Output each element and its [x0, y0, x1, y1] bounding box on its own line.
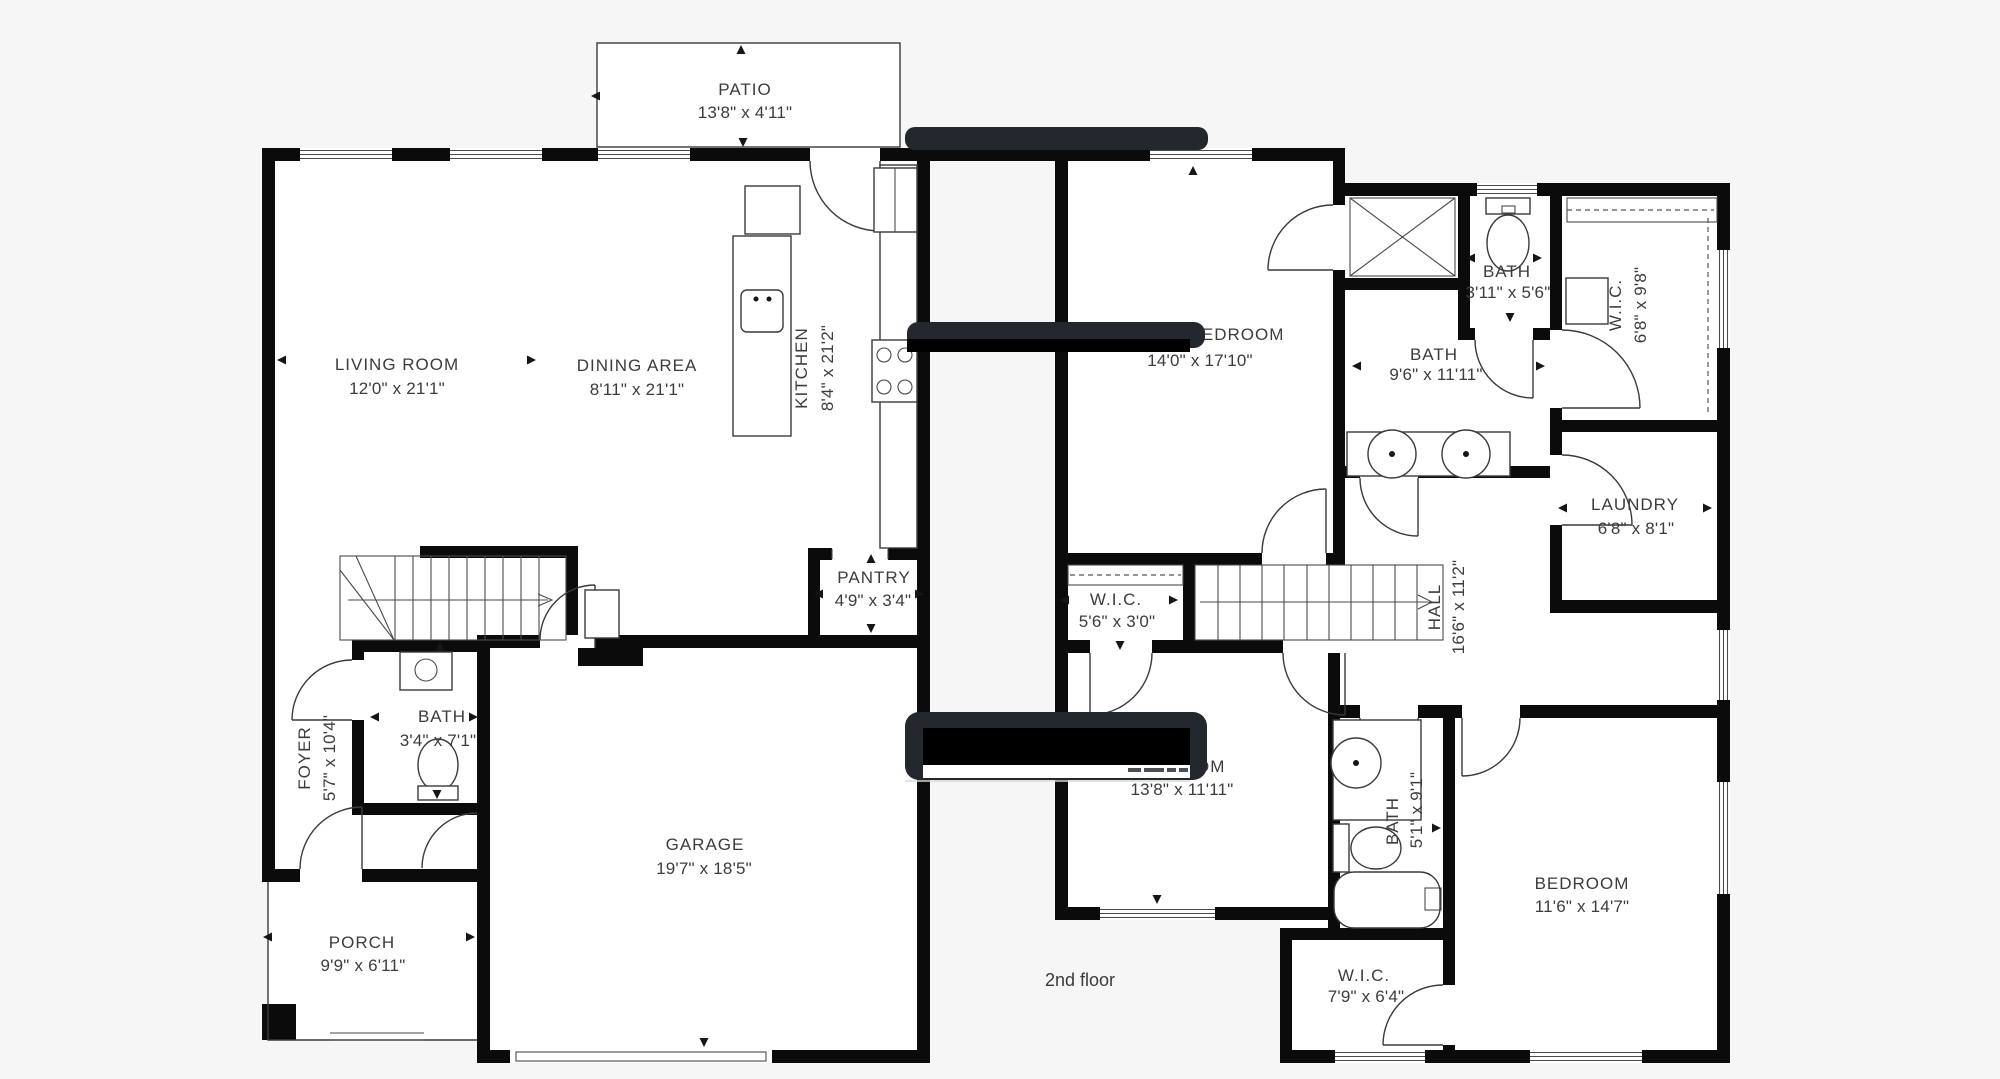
bathtub [1334, 872, 1440, 928]
bedroom2-dims: 13'8" x 11'11" [1131, 780, 1234, 799]
floor-label: 2nd floor [1045, 970, 1115, 990]
kitchen-dims: 8'4" x 21'2" [818, 325, 837, 411]
hall-dims: 16'6" x 11'2" [1449, 560, 1468, 655]
foyer-label: FOYER [295, 726, 314, 790]
kitchen-sink [741, 290, 783, 332]
redaction-bar-middle [907, 322, 1205, 352]
redaction-bar-top [905, 127, 1208, 150]
pantry-label: PANTRY [837, 568, 910, 587]
bath1-dims: 3'4" x 7'1" [400, 731, 477, 750]
wic-hall-label: W.I.C. [1090, 590, 1142, 609]
bath2-dims: 5'1" x 9'1" [1407, 772, 1426, 849]
kitchen-island [733, 236, 791, 436]
bath-sink [400, 652, 452, 690]
patio-label: PATIO [718, 80, 772, 99]
bath2-label: BATH [1383, 797, 1402, 845]
patio-dims: 13'8" x 4'11" [698, 103, 793, 122]
kitchen-label: KITCHEN [792, 327, 811, 409]
foyer-dims: 5'7" x 10'4" [320, 715, 339, 801]
wic-main-dims: 6'8" x 9'8" [1631, 267, 1650, 344]
wic-hall-dims: 5'6" x 3'0" [1079, 612, 1156, 631]
laundry-dims: 6'8" x 8'1" [1598, 519, 1675, 538]
floor-plan-canvas: PATIO 13'8" x 4'11" LIVING ROOM 12'0" x … [0, 0, 2000, 1079]
porch-dims: 9'9" x 6'11" [321, 956, 406, 975]
living-room-dims: 12'0" x 21'1" [349, 379, 445, 398]
redaction-block-logo [905, 712, 1207, 781]
bedroom3-label: BEDROOM [1535, 874, 1630, 893]
wic3-label: W.I.C. [1338, 966, 1390, 985]
porch-label: PORCH [329, 933, 395, 952]
bath-main-label: BATH [1410, 345, 1458, 364]
pantry-dims: 4'9" x 3'4" [835, 591, 912, 610]
bath-small-dims: 3'11" x 5'6" [1466, 283, 1551, 302]
bedroom3-dims: 11'6" x 14'7" [1535, 897, 1630, 916]
garage-label: GARAGE [666, 835, 745, 854]
toilet3-tank [1333, 824, 1349, 872]
hall-niche [585, 590, 619, 638]
wic3-dims: 7'9" x 6'4" [1328, 987, 1405, 1006]
bath-main-dims: 9'6" x 11'11" [1389, 365, 1482, 384]
bath1-label: BATH [418, 707, 466, 726]
garage-dims: 19'7" x 18'5" [656, 859, 752, 878]
floor-plan-drawing: PATIO 13'8" x 4'11" LIVING ROOM 12'0" x … [0, 0, 2000, 1079]
living-room-label: LIVING ROOM [335, 355, 459, 374]
bath-small-label: BATH [1483, 262, 1531, 281]
hall-label: HALL [1425, 584, 1444, 631]
dining-area-dims: 8'11" x 21'1" [590, 380, 685, 399]
dining-area-label: DINING AREA [577, 356, 698, 375]
wic-main-label: W.I.C. [1606, 279, 1625, 331]
wic-main-cabinet [1566, 278, 1608, 324]
laundry-label: LAUNDRY [1591, 495, 1679, 514]
bedroom-main-dims: 14'0" x 17'10" [1147, 351, 1253, 370]
